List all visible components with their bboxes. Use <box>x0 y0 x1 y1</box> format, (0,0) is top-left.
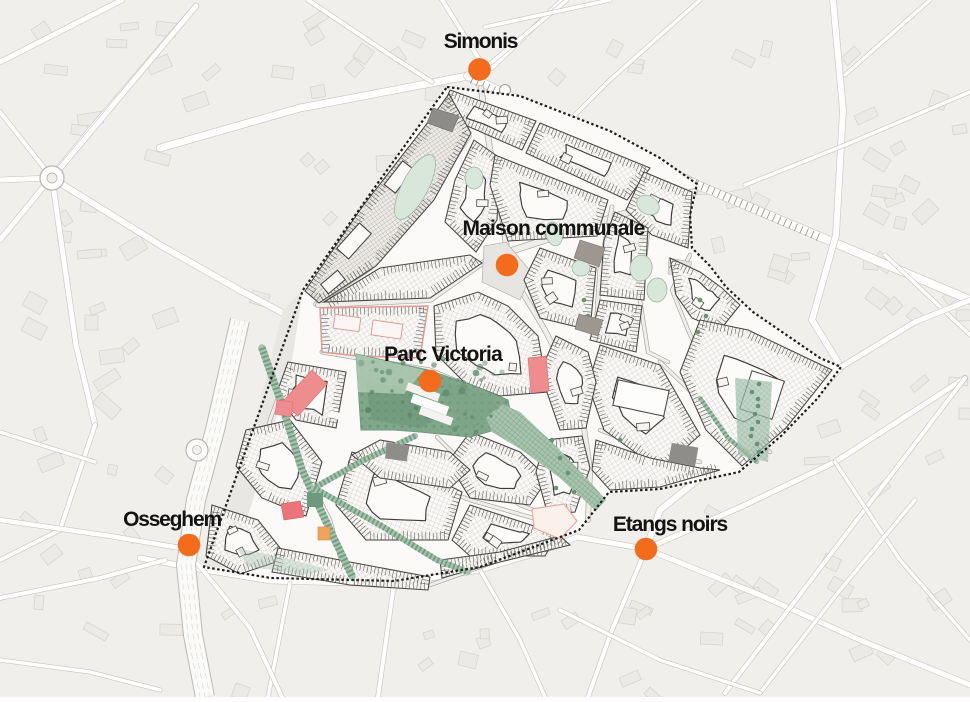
svg-text:Osseghem: Osseghem <box>123 508 221 531</box>
svg-text:Simonis: Simonis <box>444 30 518 53</box>
svg-text:Etangs noirs: Etangs noirs <box>613 513 728 536</box>
svg-text:Parc Victoria: Parc Victoria <box>384 343 503 366</box>
svg-text:Maison communale: Maison communale <box>462 217 644 240</box>
